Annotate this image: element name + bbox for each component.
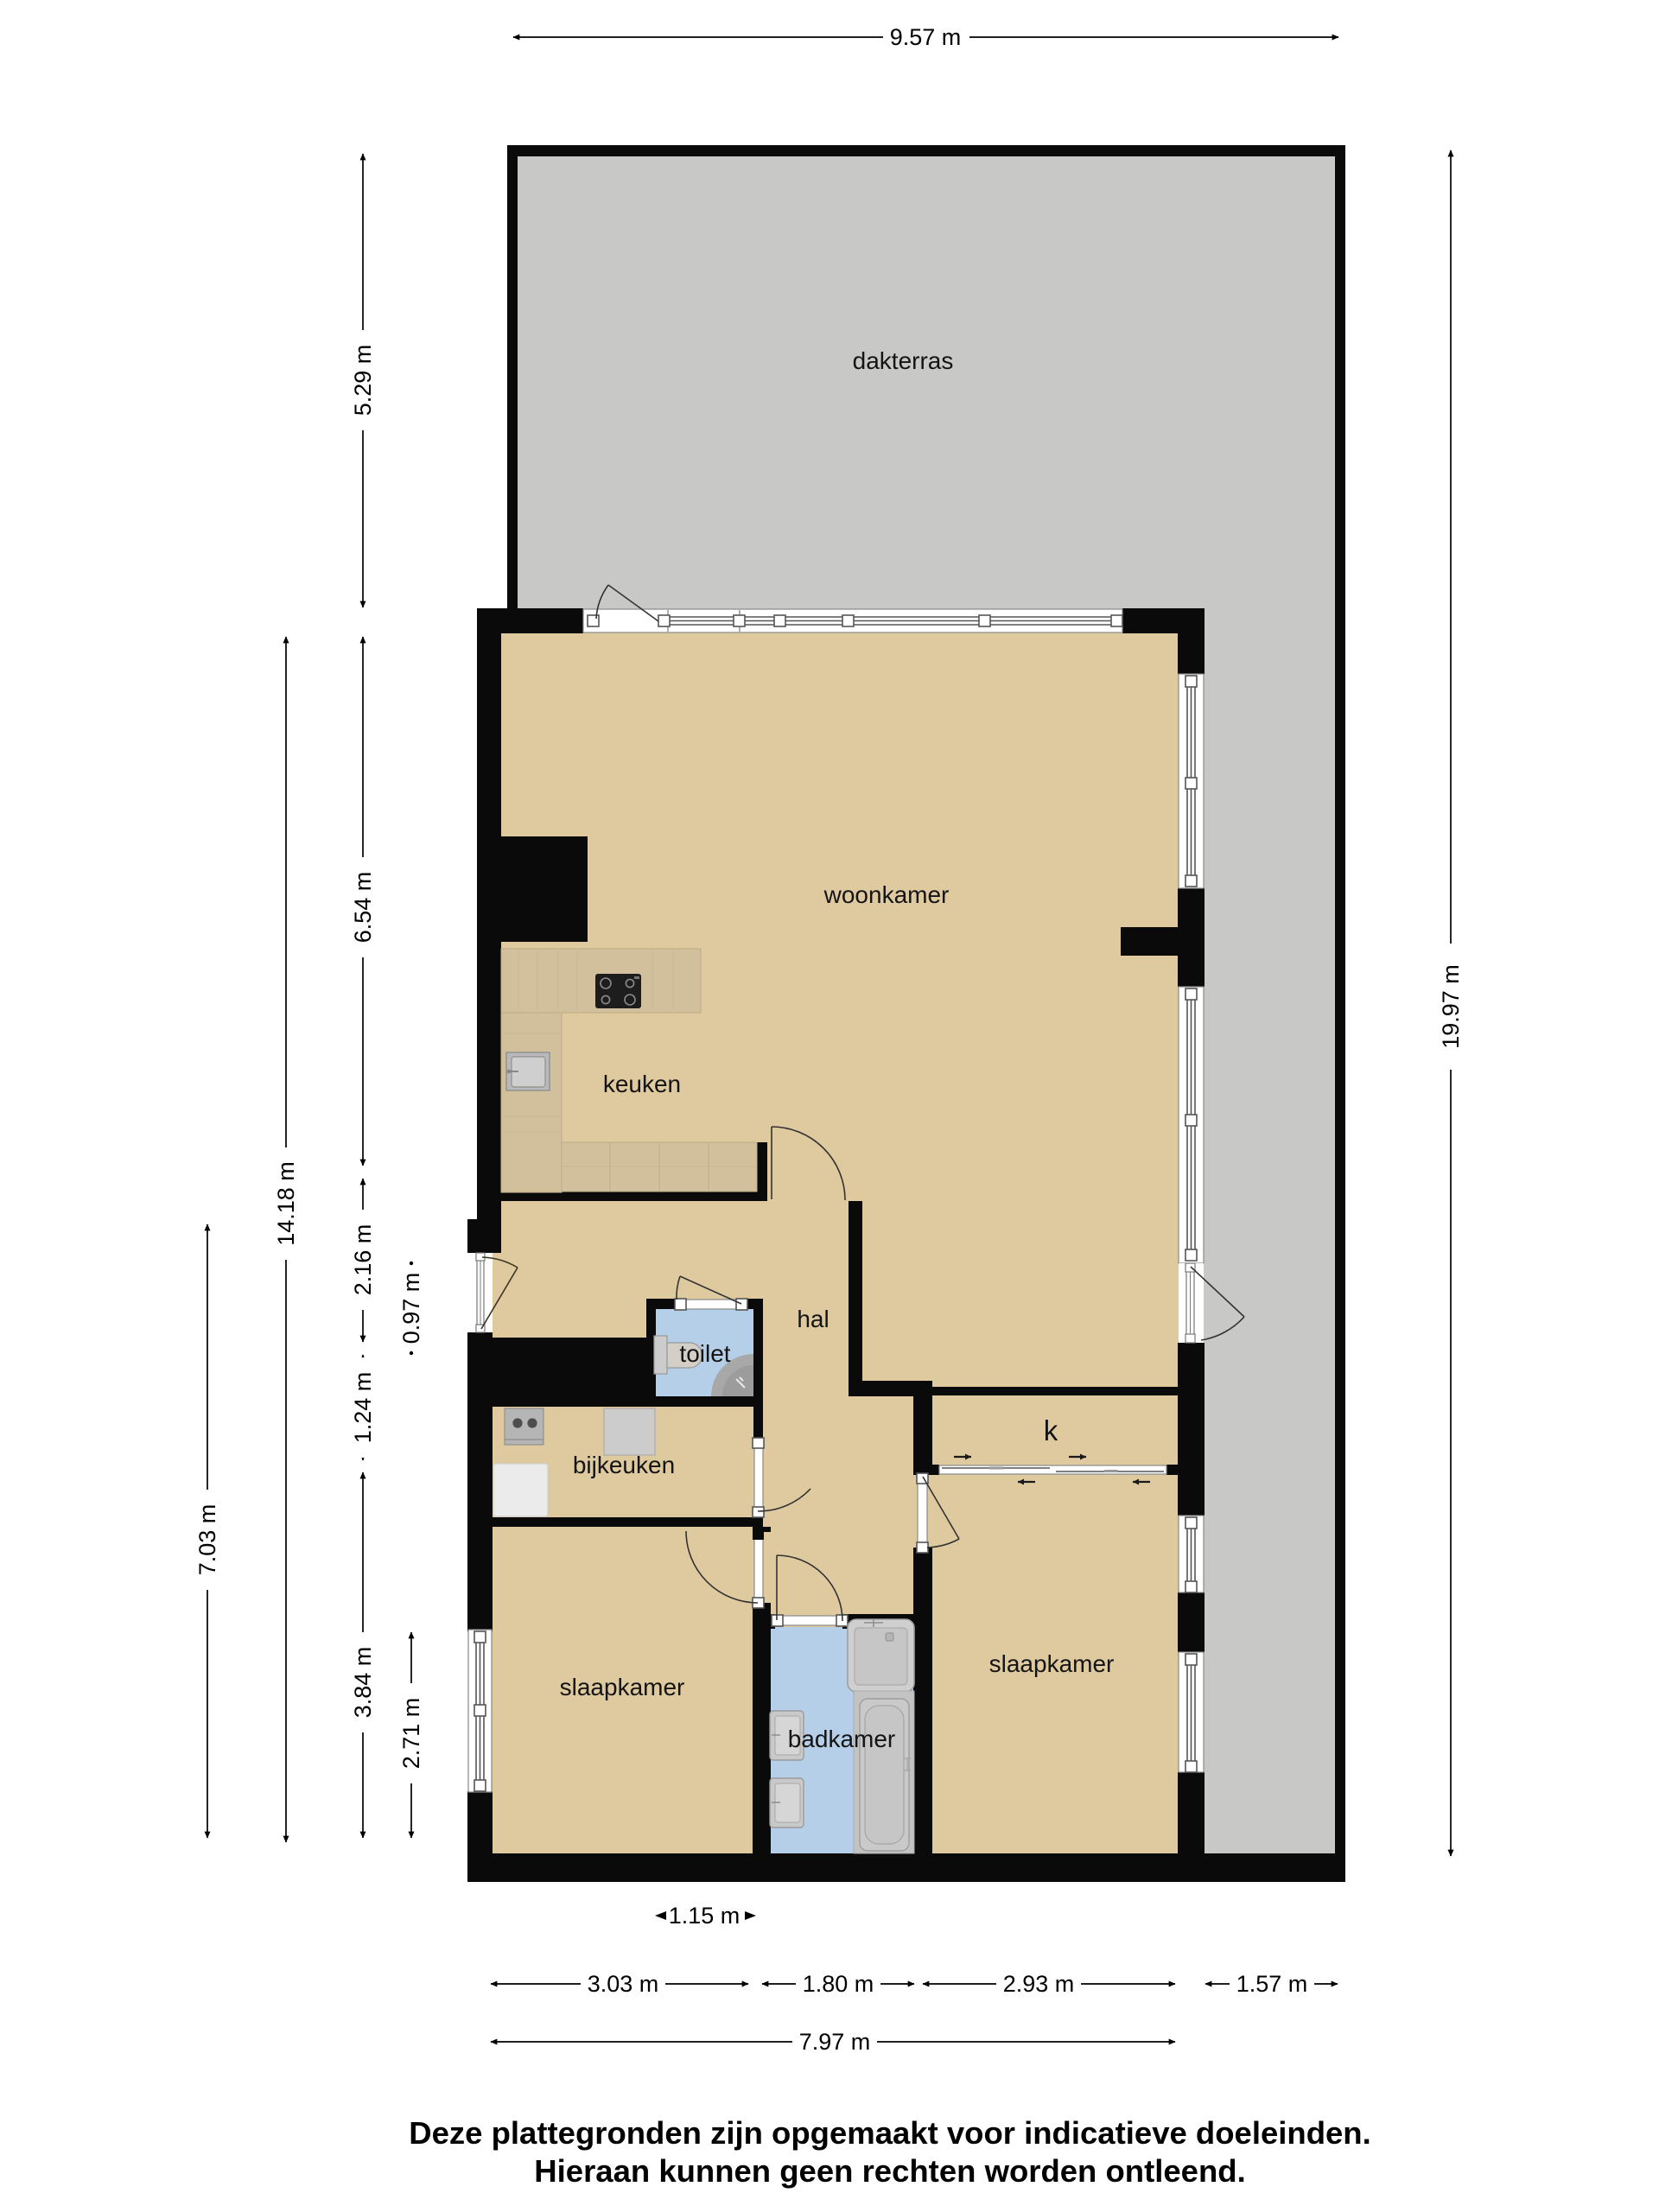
svg-text:hal: hal: [797, 1306, 829, 1332]
svg-text:6.54 m: 6.54 m: [350, 872, 376, 944]
svg-text:slaapkamer: slaapkamer: [560, 1674, 685, 1700]
svg-text:dakterras: dakterras: [853, 347, 954, 374]
svg-text:k: k: [1044, 1414, 1058, 1446]
svg-text:0.97 m: 0.97 m: [398, 1273, 424, 1344]
svg-text:3.03 m: 3.03 m: [588, 1971, 659, 1997]
svg-text:19.97 m: 19.97 m: [1438, 964, 1464, 1049]
svg-text:bijkeuken: bijkeuken: [573, 1452, 675, 1478]
svg-text:3.84 m: 3.84 m: [350, 1647, 376, 1719]
svg-text:1.57 m: 1.57 m: [1236, 1971, 1308, 1997]
svg-text:woonkamer: woonkamer: [823, 881, 950, 908]
svg-text:2.71 m: 2.71 m: [398, 1698, 424, 1770]
svg-text:keuken: keuken: [603, 1071, 681, 1097]
svg-text:1.80 m: 1.80 m: [803, 1971, 874, 1997]
svg-text:1.24 m: 1.24 m: [350, 1372, 376, 1444]
svg-text:7.03 m: 7.03 m: [194, 1504, 220, 1576]
svg-text:1.15 m: 1.15 m: [669, 1903, 741, 1929]
svg-text:2.16 m: 2.16 m: [350, 1224, 376, 1296]
svg-text:slaapkamer: slaapkamer: [989, 1650, 1115, 1677]
svg-text:5.29 m: 5.29 m: [350, 345, 376, 416]
svg-text:Hieraan kunnen geen rechten wo: Hieraan kunnen geen rechten worden ontle…: [534, 2153, 1245, 2189]
svg-text:2.93 m: 2.93 m: [1003, 1971, 1075, 1997]
svg-text:14.18 m: 14.18 m: [273, 1161, 299, 1246]
svg-text:badkamer: badkamer: [788, 1726, 896, 1752]
svg-text:toilet: toilet: [679, 1340, 730, 1367]
svg-text:9.57 m: 9.57 m: [890, 24, 962, 50]
svg-text:Deze plattegronden zijn opgema: Deze plattegronden zijn opgemaakt voor i…: [409, 2115, 1370, 2151]
svg-text:7.97 m: 7.97 m: [799, 2029, 871, 2055]
